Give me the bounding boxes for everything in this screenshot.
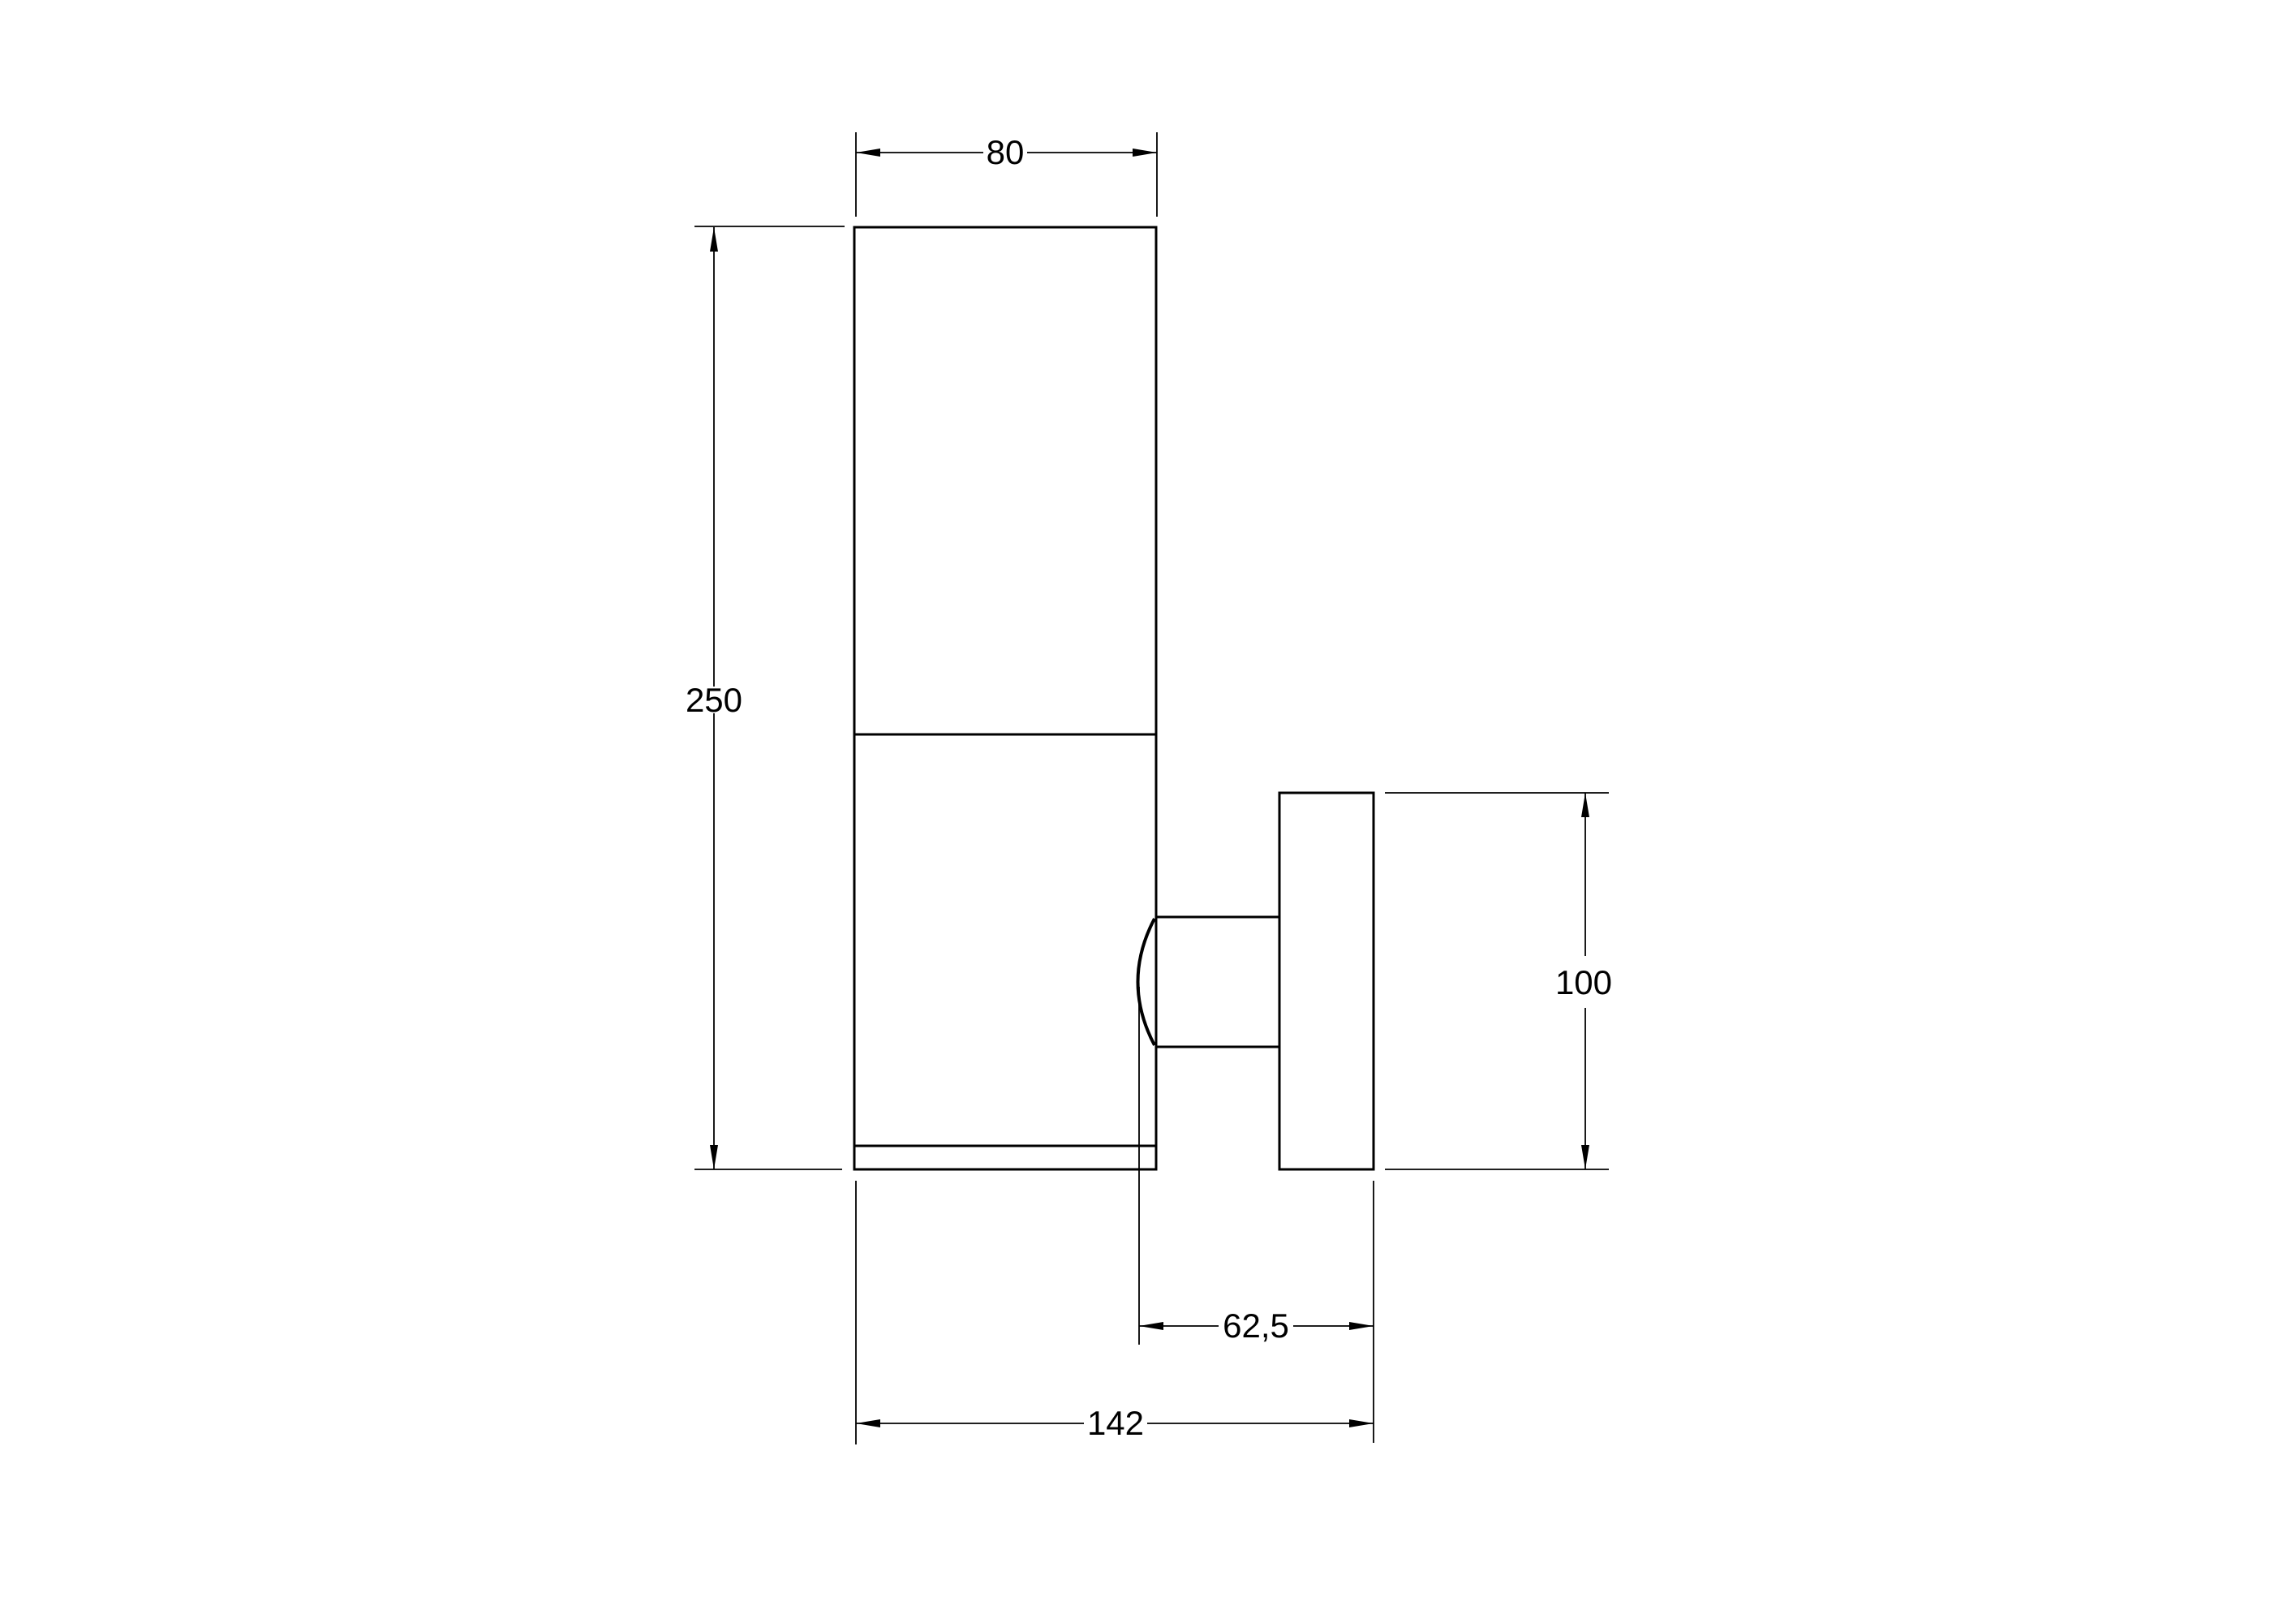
arrowhead-right	[1349, 1322, 1374, 1330]
mount-arm-outline	[1156, 917, 1279, 1047]
arrowhead-left	[856, 149, 880, 157]
dimension-label-body-width: 80	[987, 133, 1025, 171]
dimension-plate-height: 100	[1385, 793, 1612, 1169]
dimension-body-height: 250	[686, 226, 845, 1169]
arrowhead-left	[1139, 1322, 1163, 1330]
dimension-label-plate-height: 100	[1555, 963, 1612, 1001]
wall-plate-outline	[1279, 793, 1374, 1169]
arrowhead-bottom	[710, 1145, 718, 1169]
arrowhead-top	[710, 227, 718, 252]
dimension-label-body-height: 250	[686, 681, 742, 719]
lamp-body-outline	[854, 227, 1156, 1169]
arrowhead-top	[1581, 793, 1589, 817]
dimension-label-total-depth: 142	[1087, 1404, 1144, 1442]
arm-fillet-arc	[1138, 919, 1155, 1045]
dimension-bracket-depth: 62,5	[1139, 987, 1374, 1345]
dimension-total-depth: 142	[856, 1181, 1374, 1444]
arrowhead-left	[856, 1419, 880, 1427]
drawing-canvas: 80 250 100 62,5	[0, 0, 2296, 1623]
arrowhead-right	[1133, 149, 1157, 157]
dimension-label-bracket-depth: 62,5	[1223, 1307, 1289, 1345]
arrowhead-bottom	[1581, 1145, 1589, 1169]
technical-drawing: 80 250 100 62,5	[0, 0, 2296, 1623]
arrowhead-right	[1349, 1419, 1374, 1427]
lamp-outlines	[854, 227, 1374, 1169]
dimension-body-width: 80	[856, 132, 1157, 217]
